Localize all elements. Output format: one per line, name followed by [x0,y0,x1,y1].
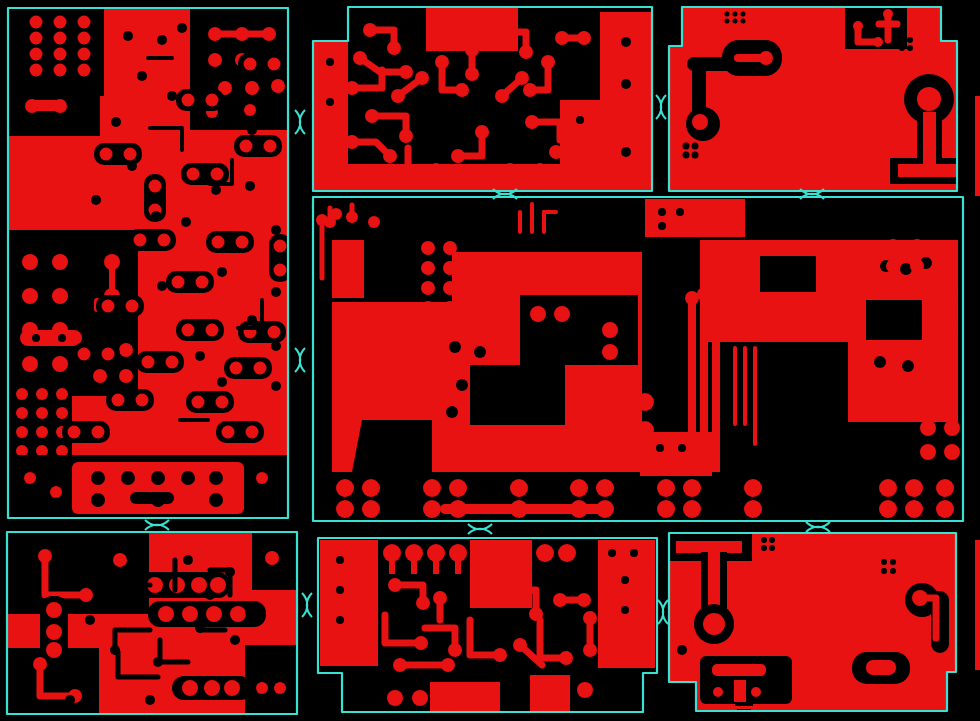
board-bottom-left [7,532,297,714]
pcb-panel-canvas [0,0,980,721]
board-bottom-center [318,538,657,712]
board-bottom-right [668,533,956,712]
board-top-center [313,7,652,191]
board-top-left [8,8,291,518]
board-center-wide [313,197,963,521]
pcb-panel-view [0,0,980,721]
board-top-right [669,7,968,191]
